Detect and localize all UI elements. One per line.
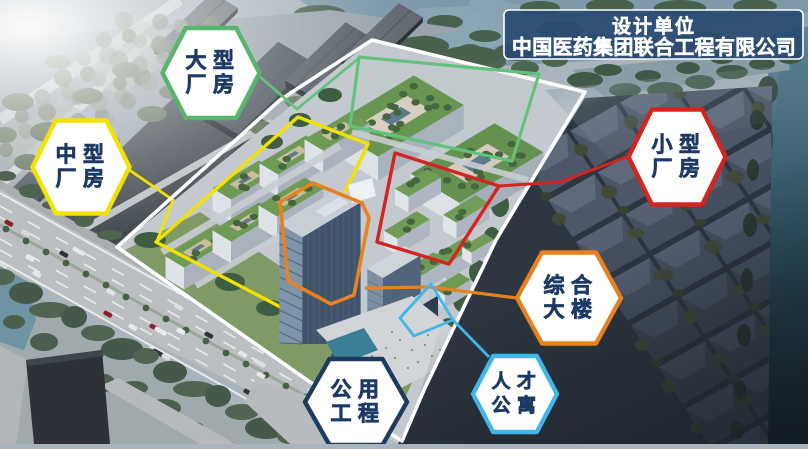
svg-text:厂房: 厂房 — [652, 157, 707, 181]
svg-text:设计单位: 设计单位 — [612, 15, 696, 38]
svg-text:大楼: 大楼 — [544, 299, 599, 322]
svg-text:大型: 大型 — [186, 50, 241, 73]
svg-text:中国医药集团联合工程有限公司: 中国医药集团联合工程有限公司 — [512, 35, 796, 59]
svg-text:中型: 中型 — [56, 144, 111, 167]
svg-text:公用: 公用 — [331, 379, 386, 402]
svg-text:工程: 工程 — [331, 403, 386, 426]
svg-text:人才: 人才 — [491, 370, 542, 393]
svg-text:公寓: 公寓 — [491, 394, 542, 417]
svg-text:小型: 小型 — [652, 134, 707, 157]
svg-text:综合: 综合 — [544, 274, 599, 298]
svg-text:厂房: 厂房 — [56, 167, 111, 191]
svg-text:厂房: 厂房 — [186, 73, 241, 97]
